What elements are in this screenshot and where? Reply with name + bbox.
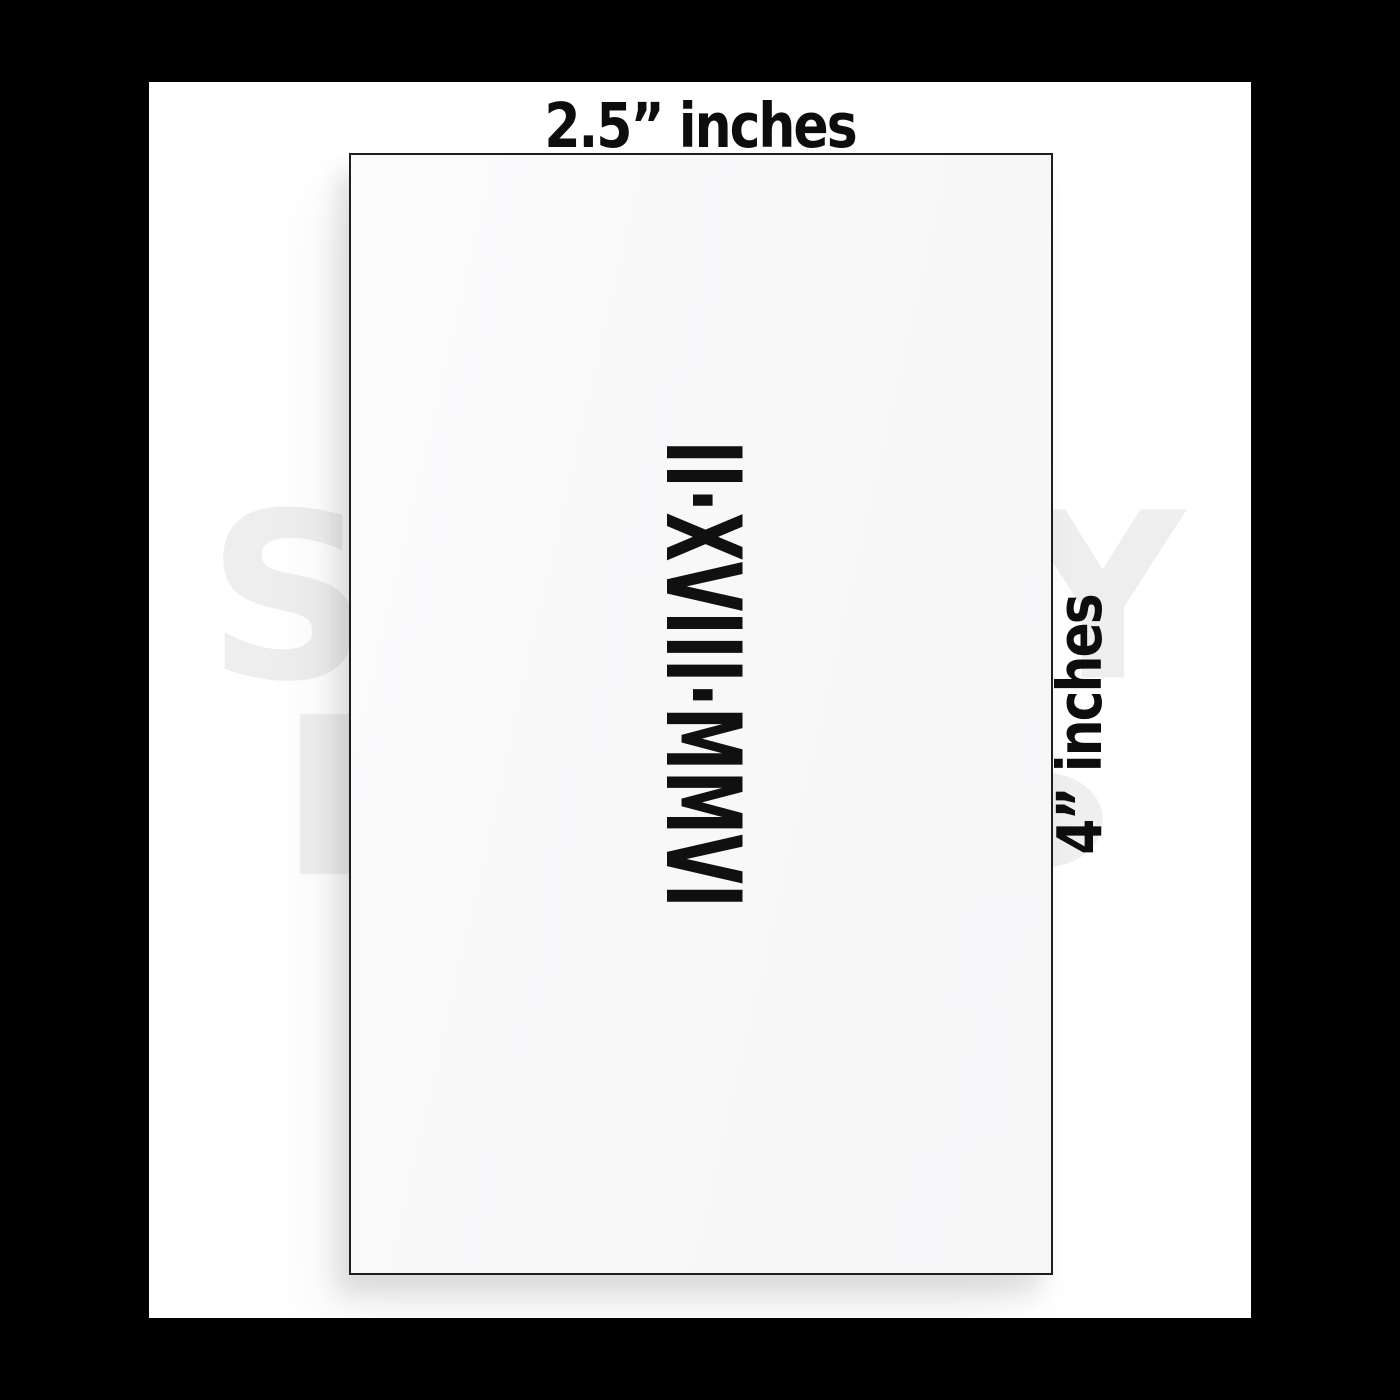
white-backdrop: S Y II·XVIII·MMVI 2.5” inches 4” inches <box>149 82 1251 1318</box>
watermark-letter-left: S <box>207 484 370 715</box>
height-dimension-label: 4” inches <box>1050 595 1111 854</box>
card-roman-numeral-date: II·XVIII·MMVI <box>649 440 753 907</box>
mockup-image: S Y II·XVIII·MMVI 2.5” inches 4” inches <box>0 0 1400 1400</box>
card-mockup: II·XVIII·MMVI <box>349 153 1053 1275</box>
width-dimension-label: 2.5” inches <box>544 96 855 157</box>
